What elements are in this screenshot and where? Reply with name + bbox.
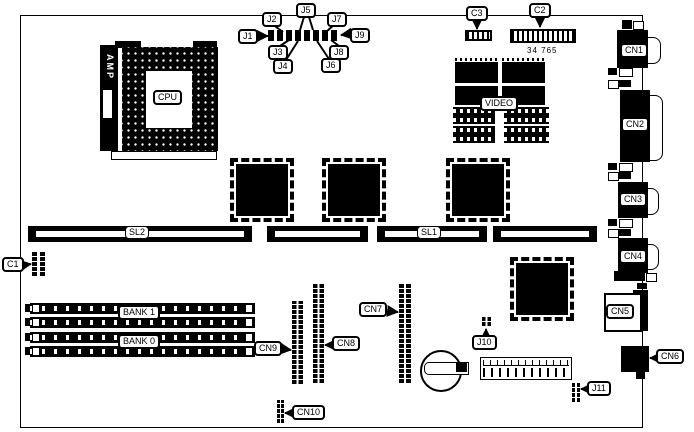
amp-bracket-label: AMP xyxy=(105,50,115,84)
video-chip xyxy=(502,62,545,83)
c3-component xyxy=(465,30,492,41)
j10-jumper xyxy=(482,317,491,327)
c1-component xyxy=(32,252,45,277)
j3-callout: J3 xyxy=(268,45,288,60)
qfp-chip xyxy=(236,164,288,216)
jumper-pin xyxy=(322,30,328,41)
j1-callout: J1 xyxy=(238,29,258,44)
video-memory-chip xyxy=(504,126,549,143)
c2-component xyxy=(510,29,576,43)
j11-jumper xyxy=(572,382,580,403)
cn9-callout: CN9 xyxy=(254,341,282,356)
sl2-label: SL2 xyxy=(125,226,149,239)
cpu-label: CPU xyxy=(153,90,182,105)
jumper-pin xyxy=(295,30,301,41)
bracket-tab xyxy=(619,80,631,87)
bracket-tab xyxy=(608,68,617,75)
jumper-pin xyxy=(286,30,292,41)
j8-callout: J8 xyxy=(329,45,349,60)
bracket-tab xyxy=(614,271,645,281)
sl1-label: SL1 xyxy=(417,226,441,239)
bracket-tab xyxy=(608,80,619,89)
bracket-tab xyxy=(619,229,631,236)
cn8-callout: CN8 xyxy=(332,336,360,351)
cn10-header xyxy=(277,400,284,424)
bracket-tab xyxy=(619,172,631,179)
jumper-block xyxy=(268,30,342,41)
cn8-header xyxy=(313,284,324,384)
bracket-tab xyxy=(608,229,619,238)
cn1-callout: CN1 xyxy=(620,43,648,58)
cn6-connector xyxy=(621,346,649,372)
jumper-pin xyxy=(331,30,337,41)
j10-callout: J10 xyxy=(472,335,497,350)
cn3-callout: CN3 xyxy=(619,192,647,207)
cn10-callout: CN10 xyxy=(292,405,325,420)
c3-callout: C3 xyxy=(466,6,488,21)
video-pins-row xyxy=(502,58,545,61)
cn6-tab xyxy=(636,372,645,379)
bank0-label: BANK 0 xyxy=(118,334,160,349)
j7-callout: J7 xyxy=(327,12,347,27)
bracket-tab xyxy=(619,163,633,172)
battery-clip-tip xyxy=(456,363,467,372)
jumper-pin xyxy=(277,30,283,41)
video-chip xyxy=(455,62,498,83)
j6-callout: J6 xyxy=(321,58,341,73)
cn2-callout: CN2 xyxy=(621,117,649,132)
video-memory-chip xyxy=(453,126,495,143)
qfp-chip xyxy=(516,263,568,315)
socket-lever xyxy=(111,151,217,160)
j4-callout: J4 xyxy=(273,59,293,74)
bracket-tab xyxy=(637,283,647,289)
bank1-label: BANK 1 xyxy=(118,305,160,320)
bracket-tab xyxy=(608,163,617,170)
cn7-callout: CN7 xyxy=(359,302,387,317)
slot xyxy=(267,226,368,242)
qfp-chip xyxy=(328,164,380,216)
bracket-tab xyxy=(608,219,617,226)
bracket-tab xyxy=(646,273,657,282)
bracket-tab xyxy=(619,68,633,77)
c2-callout: C2 xyxy=(529,3,551,18)
video-pins-row xyxy=(455,58,498,61)
jumper-pin xyxy=(313,30,319,41)
j2-callout: J2 xyxy=(262,12,282,27)
c1-callout: C1 xyxy=(2,257,24,272)
bracket-tab xyxy=(622,20,632,29)
cn5-callout: CN5 xyxy=(606,304,634,319)
bracket-tab xyxy=(608,172,619,181)
bracket-tab xyxy=(633,21,644,30)
j9-callout: J9 xyxy=(350,28,370,43)
cn6-callout: CN6 xyxy=(656,349,684,364)
video-label: VIDEO xyxy=(480,96,518,111)
front-panel-connector xyxy=(480,357,572,380)
cn7-header xyxy=(399,284,411,384)
j11-callout: J11 xyxy=(587,381,611,396)
cpu-bracket-slot xyxy=(103,90,112,118)
cn9-header xyxy=(292,301,303,385)
slot xyxy=(493,226,597,242)
cn4-callout: CN4 xyxy=(619,249,647,264)
bracket-tab xyxy=(619,219,633,228)
j5-callout: J5 xyxy=(296,3,316,18)
part-number: 34 765 xyxy=(527,46,557,55)
jumper-pin xyxy=(304,30,310,41)
qfp-chip xyxy=(452,164,504,216)
motherboard-diagram: AMP CPU 34 765 VIDEO SL2 SL1 xyxy=(0,0,694,432)
jumper-pin xyxy=(268,30,274,41)
